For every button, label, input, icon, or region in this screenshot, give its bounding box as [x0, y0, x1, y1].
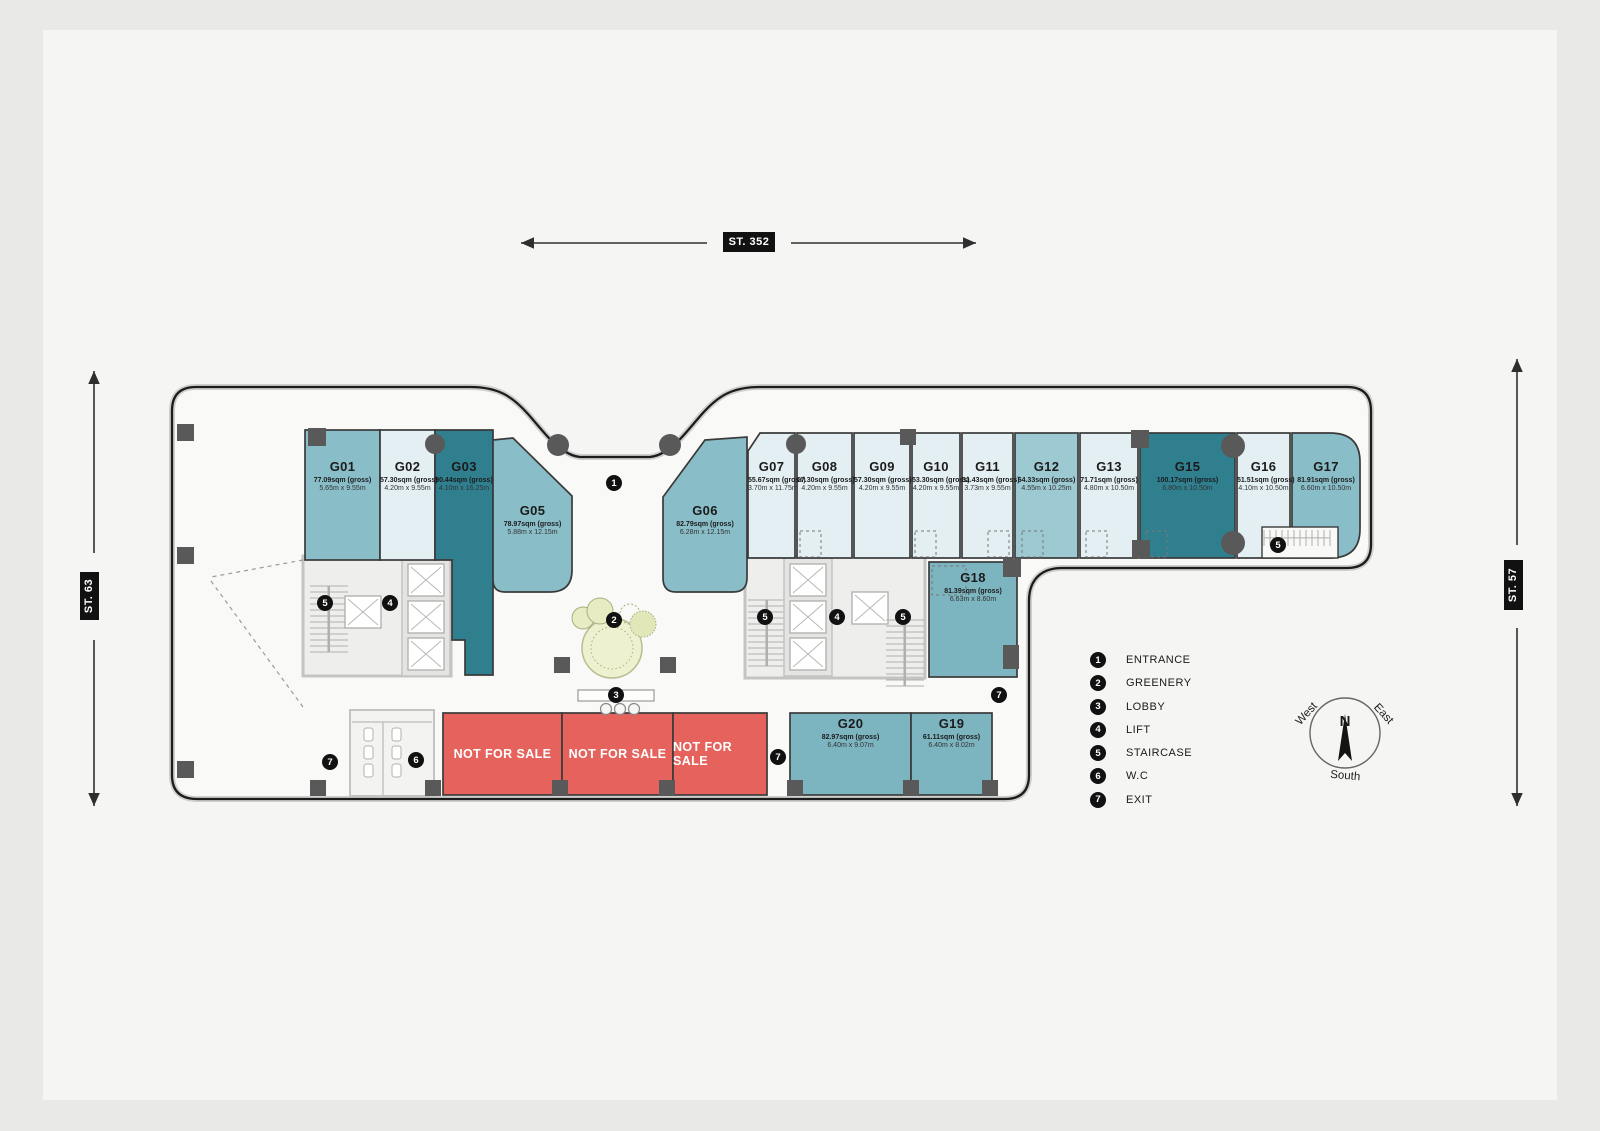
- legend-label: EXIT: [1126, 794, 1152, 806]
- street-label-left: ST. 63: [80, 572, 99, 620]
- floor-plan-drawing: N West East South: [0, 0, 1600, 1131]
- legend-item-lobby: 3 LOBBY: [1090, 699, 1192, 715]
- unit-g01-shape: [305, 430, 380, 560]
- legend: 1 ENTRANCE 2 GREENERY 3 LOBBY 4 LIFT 5 S…: [1090, 652, 1192, 815]
- street-label-right-text: ST. 57: [1508, 568, 1520, 602]
- street-label-top: ST. 352: [723, 232, 775, 252]
- legend-num: 7: [1090, 792, 1106, 808]
- marker-staircase-4: 5: [1270, 537, 1286, 553]
- marker-lift-left: 4: [382, 595, 398, 611]
- legend-label: W.C: [1126, 770, 1148, 782]
- legend-num: 1: [1090, 652, 1106, 668]
- legend-item-exit: 7 EXIT: [1090, 792, 1192, 808]
- unit-g07-shape: [748, 433, 795, 558]
- street-label-left-text: ST. 63: [84, 579, 96, 613]
- unit-g20-shape: [790, 713, 911, 795]
- legend-num: 6: [1090, 768, 1106, 784]
- legend-num: 5: [1090, 745, 1106, 761]
- marker-wc: 6: [408, 752, 424, 768]
- street-label-right: ST. 57: [1504, 560, 1523, 610]
- not-for-sale-2-label: NOT FOR SALE: [562, 713, 673, 795]
- marker-staircase-2: 5: [757, 609, 773, 625]
- marker-greenery: 2: [606, 612, 622, 628]
- unit-g15-shape: [1140, 433, 1235, 558]
- legend-num: 4: [1090, 722, 1106, 738]
- legend-item-lift: 4 LIFT: [1090, 722, 1192, 738]
- unit-g08-shape: [797, 433, 852, 558]
- marker-lift-right: 4: [829, 609, 845, 625]
- wc-block: [350, 710, 434, 796]
- legend-num: 3: [1090, 699, 1106, 715]
- left-core: [303, 556, 451, 676]
- compass-north-label: N: [1340, 713, 1351, 730]
- marker-lobby: 3: [608, 687, 624, 703]
- legend-label: LIFT: [1126, 724, 1151, 736]
- legend-item-staircase: 5 STAIRCASE: [1090, 745, 1192, 761]
- unit-g19-shape: [911, 713, 992, 795]
- compass-rose: N West East South: [1294, 698, 1396, 783]
- not-for-sale-3-label: NOT FOR SALE: [673, 713, 767, 795]
- legend-item-wc: 6 W.C: [1090, 768, 1192, 784]
- legend-label: STAIRCASE: [1126, 747, 1192, 759]
- legend-label: GREENERY: [1126, 677, 1192, 689]
- unit-g09-shape: [854, 433, 910, 558]
- compass-south-label: South: [1330, 769, 1361, 784]
- legend-num: 2: [1090, 675, 1106, 691]
- legend-label: ENTRANCE: [1126, 654, 1191, 666]
- legend-item-greenery: 2 GREENERY: [1090, 675, 1192, 691]
- unit-g12-shape: [1015, 433, 1078, 558]
- legend-item-entrance: 1 ENTRANCE: [1090, 652, 1192, 668]
- not-for-sale-1-label: NOT FOR SALE: [443, 713, 562, 795]
- marker-staircase-1: 5: [317, 595, 333, 611]
- marker-entrance: 1: [606, 475, 622, 491]
- marker-exit-2: 7: [770, 749, 786, 765]
- marker-exit-1: 7: [322, 754, 338, 770]
- legend-label: LOBBY: [1126, 701, 1165, 713]
- marker-exit-3: 7: [991, 687, 1007, 703]
- marker-staircase-3: 5: [895, 609, 911, 625]
- unit-g10-shape: [912, 433, 960, 558]
- unit-g13-shape: [1080, 433, 1138, 558]
- floor-plan-page: N West East South G01 77.09sqm (gross) 5…: [0, 0, 1600, 1131]
